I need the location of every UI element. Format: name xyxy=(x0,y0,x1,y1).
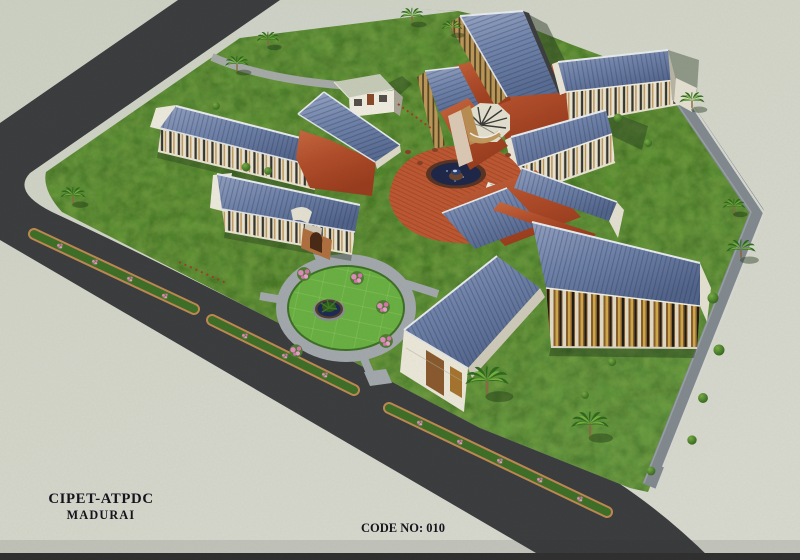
svg-text:CODE NO: 010: CODE NO: 010 xyxy=(361,521,445,535)
svg-text:MADURAI: MADURAI xyxy=(67,508,136,522)
svg-text:CIPET-ATPDC: CIPET-ATPDC xyxy=(48,491,153,507)
